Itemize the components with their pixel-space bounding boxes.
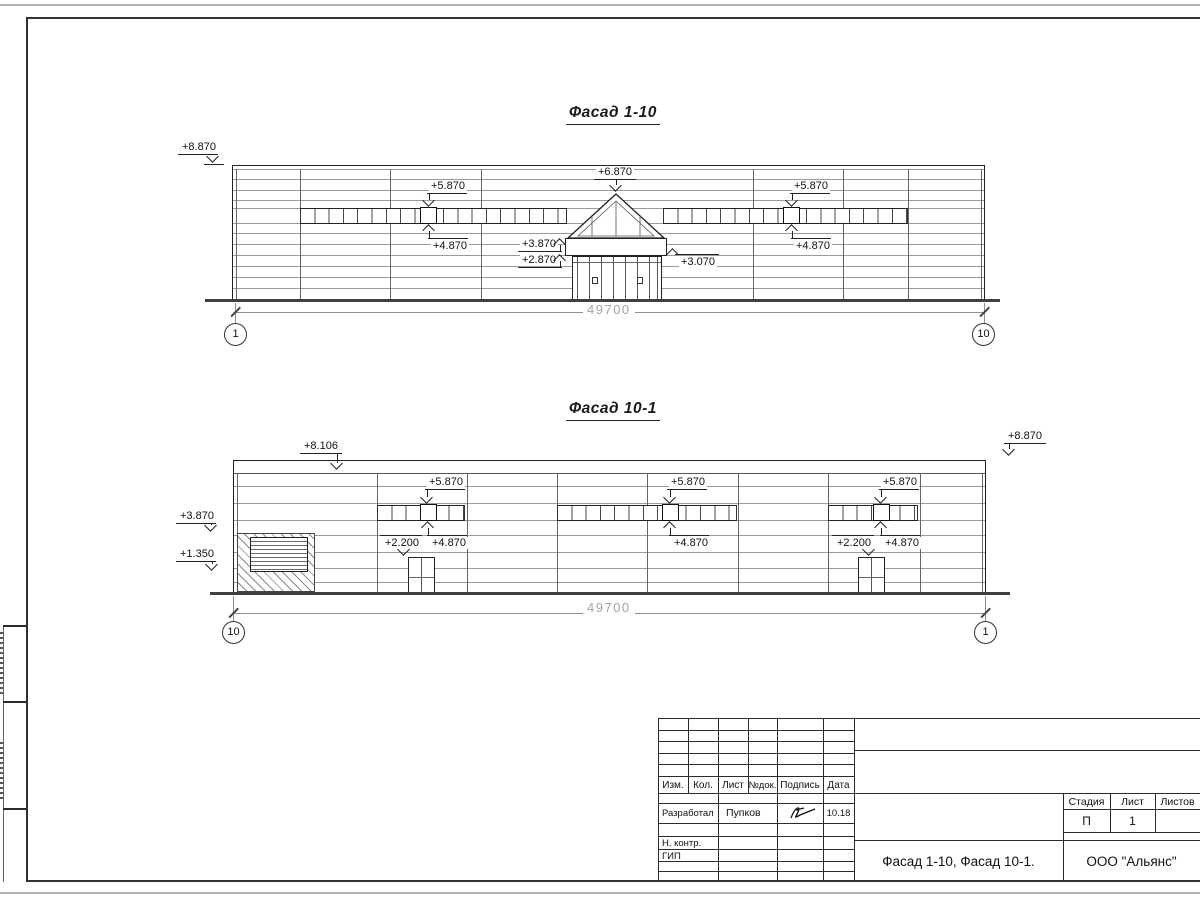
col-podpis: Подпись bbox=[777, 777, 823, 793]
path bbox=[791, 808, 815, 818]
elevation-mark-shelf bbox=[669, 535, 709, 536]
level-line bbox=[204, 164, 224, 165]
elevation-mark-shelf bbox=[380, 535, 422, 536]
stage-label: Стадия bbox=[1063, 794, 1110, 809]
grid-line bbox=[854, 750, 1200, 751]
facade-1-10-title: Фасад 1-10 bbox=[566, 104, 660, 125]
dimline bbox=[233, 596, 234, 621]
marked-window bbox=[420, 207, 437, 224]
elevation-mark-shelf bbox=[425, 489, 465, 490]
document-title: Фасад 1-10, Фасад 10-1. bbox=[854, 841, 1063, 881]
elevation-mark-label: +5.870 bbox=[881, 476, 919, 488]
grid-line bbox=[409, 577, 434, 578]
elevation-mark-label: +6.870 bbox=[596, 166, 634, 178]
elevation-mark-shelf bbox=[427, 193, 467, 194]
elevation-mark-shelf bbox=[879, 489, 919, 490]
elevation-mark-label: +5.870 bbox=[792, 180, 830, 192]
margin-box-line bbox=[3, 625, 4, 882]
elevation-mark-label: +4.870 bbox=[794, 240, 832, 252]
elevation-mark-shelf bbox=[1004, 443, 1046, 444]
grid-line bbox=[658, 871, 854, 872]
mullion bbox=[613, 257, 614, 300]
elevation-mark-shelf bbox=[790, 193, 830, 194]
elevation-mark-shelf bbox=[518, 267, 562, 268]
rotated-text-hint bbox=[0, 742, 3, 800]
elevation-mark-label: +5.870 bbox=[429, 180, 467, 192]
porch-gable-roof bbox=[560, 190, 672, 240]
mullion bbox=[577, 257, 578, 300]
sheet-label: Лист bbox=[1110, 794, 1155, 809]
paper-bottom-edge bbox=[0, 892, 1200, 894]
dimline bbox=[985, 596, 986, 621]
col-list: Лист bbox=[718, 777, 748, 793]
margin-box-divider bbox=[3, 701, 26, 703]
frame-left bbox=[26, 17, 28, 882]
elevation-mark-shelf bbox=[667, 489, 707, 490]
elevation-mark-shelf bbox=[880, 535, 920, 536]
sheet-value: 1 bbox=[1110, 810, 1155, 832]
col-kol: Кол. bbox=[688, 777, 718, 793]
dimension-value: 49700 bbox=[583, 302, 635, 317]
dimension-value: 49700 bbox=[583, 600, 635, 615]
mullion bbox=[421, 558, 422, 592]
organization-name: ООО "Альянс" bbox=[1063, 841, 1200, 881]
elevation-mark-shelf bbox=[518, 251, 562, 252]
elevation-mark-label: +4.870 bbox=[883, 537, 921, 549]
grid-line bbox=[573, 262, 661, 263]
axis-circle-10: 10 bbox=[972, 323, 995, 346]
marked-window bbox=[662, 504, 679, 521]
developed-label: Разработал bbox=[659, 805, 720, 821]
elevation-mark-shelf bbox=[675, 254, 719, 255]
elevation-mark-shelf bbox=[300, 453, 342, 454]
elevation-mark-shelf bbox=[832, 535, 874, 536]
grid-line bbox=[658, 718, 1200, 719]
elevation-mark-label: +5.870 bbox=[427, 476, 465, 488]
developed-date: 10.18 bbox=[823, 805, 854, 821]
grid-line bbox=[1063, 832, 1200, 833]
stage-value: П bbox=[1063, 810, 1110, 832]
ground-line bbox=[210, 592, 1010, 595]
mullion bbox=[625, 257, 626, 300]
grid-line bbox=[777, 718, 778, 882]
facade-10-1-title: Фасад 10-1 bbox=[566, 400, 660, 421]
signature bbox=[788, 804, 818, 822]
mullion bbox=[649, 257, 650, 300]
elevation-mark-shelf bbox=[427, 535, 467, 536]
rotated-text-hint bbox=[0, 632, 3, 694]
elevation-mark-label: +8.870 bbox=[1006, 430, 1044, 442]
elevation-mark-label: +3.070 bbox=[679, 256, 717, 268]
col-izm: Изм. bbox=[658, 777, 688, 793]
door-handle bbox=[637, 277, 643, 284]
margin-box-divider bbox=[3, 808, 26, 810]
frame-top bbox=[26, 17, 1200, 19]
developed-name: Пупков bbox=[723, 805, 776, 821]
louver-shutter bbox=[250, 537, 308, 572]
marked-window bbox=[420, 504, 437, 521]
gip-label: ГИП bbox=[659, 850, 720, 863]
margin-box-divider bbox=[3, 625, 26, 627]
axis-circle-1: 1 bbox=[974, 621, 997, 644]
col-data: Дата bbox=[823, 777, 854, 793]
elevation-mark-shelf bbox=[428, 238, 468, 239]
mullion bbox=[871, 558, 872, 592]
marked-window bbox=[783, 207, 800, 224]
elevation-mark-arrow bbox=[1002, 443, 1015, 456]
mullion bbox=[657, 257, 658, 300]
elevation-mark-label: +4.870 bbox=[431, 240, 469, 252]
elevation-mark-label: +4.870 bbox=[672, 537, 710, 549]
mullion bbox=[589, 257, 590, 300]
grid-line bbox=[658, 793, 854, 794]
ncontr-label: Н. контр. bbox=[659, 837, 720, 850]
elevation-mark-label: +8.106 bbox=[302, 440, 340, 452]
mullion bbox=[601, 257, 602, 300]
grid-line bbox=[823, 718, 824, 882]
elevation-mark-label: +4.870 bbox=[430, 537, 468, 549]
axis-circle-10: 10 bbox=[222, 621, 245, 644]
grid-line bbox=[658, 803, 854, 804]
elevation-mark-label: +5.870 bbox=[669, 476, 707, 488]
paper-top-edge bbox=[0, 4, 1200, 6]
grid-line bbox=[859, 577, 884, 578]
grid-line bbox=[658, 823, 854, 824]
axis-circle-1: 1 bbox=[224, 323, 247, 346]
marked-window bbox=[873, 504, 890, 521]
drawing-sheet: Фасад 1-10 bbox=[0, 0, 1200, 900]
elevation-mark-shelf bbox=[791, 238, 831, 239]
window-band bbox=[557, 505, 737, 521]
col-ndok: №док. bbox=[746, 777, 779, 793]
sheets-label: Листов bbox=[1155, 794, 1200, 809]
door-handle bbox=[592, 277, 598, 284]
porch-canopy bbox=[565, 238, 667, 256]
